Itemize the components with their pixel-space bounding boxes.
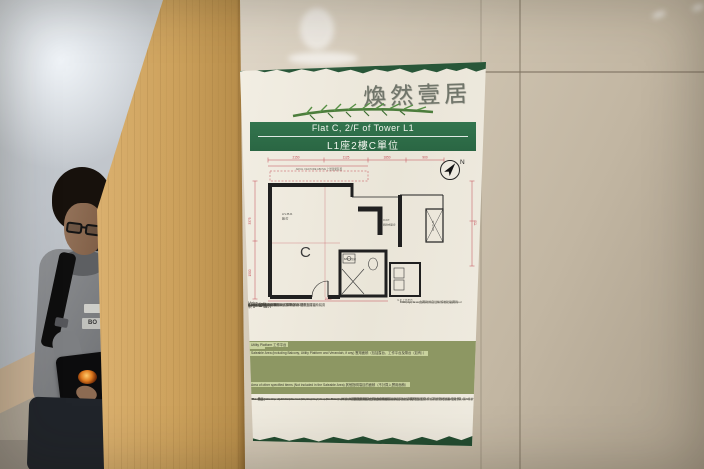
unit-banner: Flat C, 2/F of Tower L1 L1座2樓C單位 <box>250 122 476 151</box>
dim-label: 3375 <box>248 217 252 224</box>
utility-platform-label: Utility Platform 工作平台 <box>249 342 288 347</box>
glasses-bridge <box>81 226 86 229</box>
scale-end: 5 <box>274 303 276 307</box>
dim-label: 900 <box>422 156 428 160</box>
unit-banner-english: Flat C, 2/F of Tower L1 <box>250 123 476 133</box>
floor-plan-poster: 煥然壹居 Flat C, 2/F of Tower L1 L1座2樓C單位 <box>240 62 486 446</box>
poster-notes: Notes 備註： 1. The dimensions in the floor… <box>248 397 478 433</box>
north-label: N <box>460 159 465 166</box>
kitchen-label: O.KIT. <box>383 219 390 222</box>
other-items-label: Area of other specified items (Not inclu… <box>249 382 410 387</box>
kitchen-label-zh: 開放式廚房 <box>383 223 396 227</box>
shirt-logo: BO <box>82 318 103 329</box>
saleable-area-label: Saleable Area (including Balcony, Utilit… <box>249 351 428 356</box>
unit-label: C <box>300 244 311 261</box>
photograph: BO 煥然壹居 Flat C, 2/F of Tower L1 <box>0 0 704 469</box>
north-arrow-icon: N <box>438 155 470 183</box>
unit-banner-chinese: L1座2樓C單位 <box>250 137 476 152</box>
dim-label: 2150 <box>292 156 299 160</box>
dim-label: 1125 <box>343 156 350 160</box>
floor-plan-drawing: 2150 1125 1850 900 3375 1500 750 1050 <box>240 151 486 303</box>
metre-label: Metre 米 <box>248 301 258 310</box>
fern-leaf-icon <box>288 102 438 120</box>
saleable-area-table: sq.m 平方米 sq.ft 平方呎 Saleable Area (includ… <box>248 341 478 394</box>
living-label-zh: 廳/房 <box>282 217 289 221</box>
dim-label: 750 <box>474 220 478 226</box>
shirt-label <box>84 304 101 313</box>
person-trousers <box>27 397 112 469</box>
bath-label: BATH 浴室 <box>344 257 357 261</box>
light-reflection-streak <box>288 52 358 65</box>
living-label: LIV./B.R. <box>282 212 293 216</box>
ac-platform-label: A/C PLAT. <box>432 220 435 231</box>
dim-label: 1500 <box>248 269 252 276</box>
camera-lens <box>78 370 97 384</box>
table-cell-blank <box>249 342 253 343</box>
legend-and-scale: Legend 圖例 A/C PLAT. 空調機平台 BATH 浴室 U.P. 工… <box>248 303 478 339</box>
arch-feature-label: ARCH. FEATURE ABOVE 上層建築裝置 <box>296 167 343 171</box>
light-reflection-large <box>300 8 334 50</box>
tile-grout-vertical <box>519 0 521 469</box>
dim-label: 1850 <box>383 156 390 160</box>
